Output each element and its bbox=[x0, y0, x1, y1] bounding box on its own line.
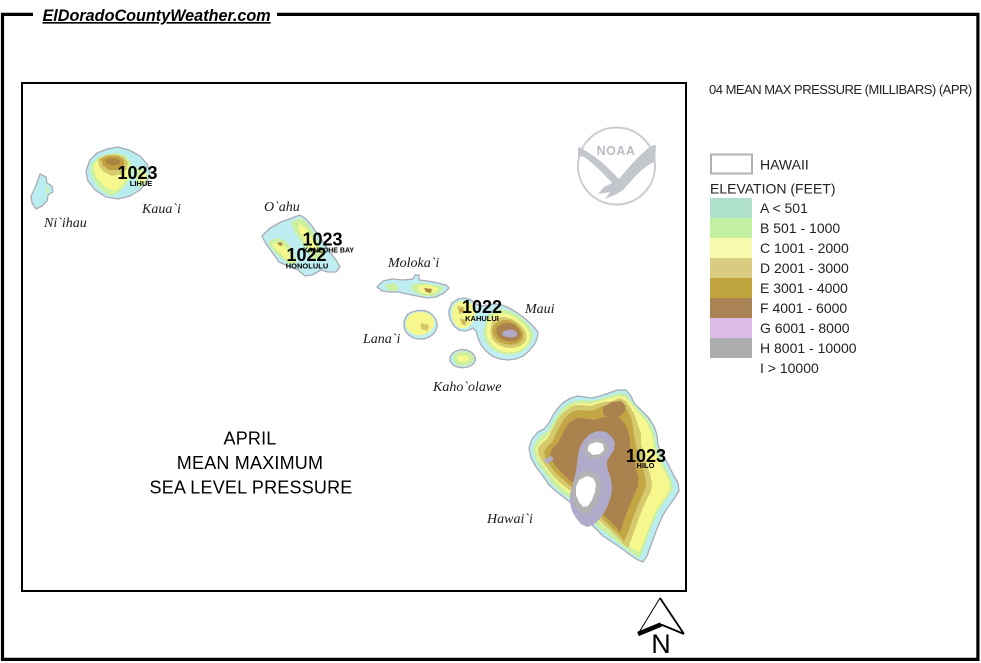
svg-text:Maui: Maui bbox=[524, 302, 555, 317]
svg-text:APRIL: APRIL bbox=[223, 429, 276, 449]
svg-text:LIHUE: LIHUE bbox=[130, 179, 153, 188]
svg-text:B 501 - 1000: B 501 - 1000 bbox=[760, 220, 840, 236]
svg-text:D 2001 - 3000: D 2001 - 3000 bbox=[760, 260, 849, 276]
svg-text:SEA LEVEL PRESSURE: SEA LEVEL PRESSURE bbox=[149, 478, 352, 498]
svg-text:E 3001 - 4000: E 3001 - 4000 bbox=[760, 280, 848, 296]
svg-text:Hawai`i: Hawai`i bbox=[486, 512, 533, 527]
svg-text:O`ahu: O`ahu bbox=[264, 200, 300, 215]
svg-text:Kaho`olawe: Kaho`olawe bbox=[432, 380, 501, 395]
svg-text:F 4001 - 6000: F 4001 - 6000 bbox=[760, 300, 847, 316]
svg-text:HONOLULU: HONOLULU bbox=[286, 262, 329, 271]
svg-text:N: N bbox=[651, 629, 671, 659]
svg-text:HAWAII: HAWAII bbox=[760, 157, 809, 173]
svg-text:Moloka`i: Moloka`i bbox=[387, 256, 439, 271]
svg-text:ElDoradoCountyWeather.com: ElDoradoCountyWeather.com bbox=[43, 7, 271, 25]
svg-text:ELEVATION (FEET): ELEVATION (FEET) bbox=[710, 181, 836, 197]
svg-text:HILO: HILO bbox=[637, 461, 655, 470]
svg-text:I > 10000: I > 10000 bbox=[760, 360, 819, 376]
svg-text:04 MEAN MAX PRESSURE (MILLIBAR: 04 MEAN MAX PRESSURE (MILLIBARS) (APR) bbox=[709, 82, 972, 97]
svg-text:C 1001 - 2000: C 1001 - 2000 bbox=[760, 240, 849, 256]
svg-text:NOAA: NOAA bbox=[597, 144, 636, 158]
svg-text:G 6001 - 8000: G 6001 - 8000 bbox=[760, 320, 850, 336]
svg-text:Lana`i: Lana`i bbox=[362, 332, 400, 347]
svg-text:Kaua`i: Kaua`i bbox=[141, 202, 181, 217]
svg-text:Ni`ihau: Ni`ihau bbox=[43, 216, 87, 231]
svg-text:H 8001 - 10000: H 8001 - 10000 bbox=[760, 340, 857, 356]
svg-text:KAHULUI: KAHULUI bbox=[465, 314, 499, 323]
svg-text:MEAN MAXIMUM: MEAN MAXIMUM bbox=[177, 453, 323, 473]
svg-text:A < 501: A < 501 bbox=[760, 200, 808, 216]
